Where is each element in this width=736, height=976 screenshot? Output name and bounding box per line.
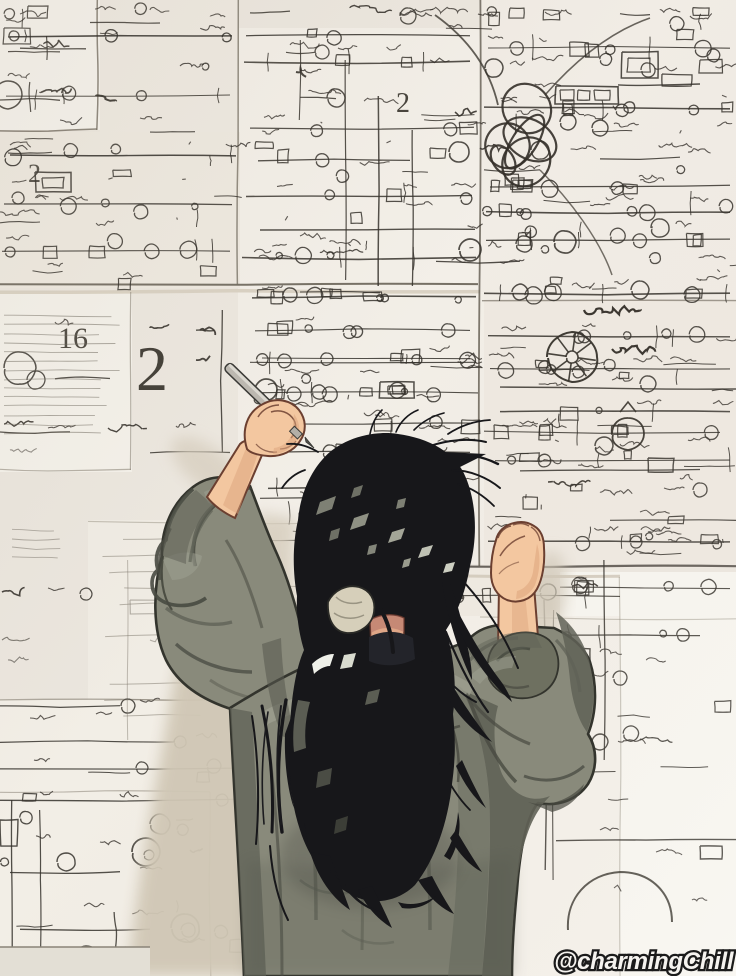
svg-text:2: 2 bbox=[136, 333, 168, 404]
svg-text:16: 16 bbox=[58, 322, 88, 355]
svg-text:@charmingChill: @charmingChill bbox=[554, 948, 735, 975]
